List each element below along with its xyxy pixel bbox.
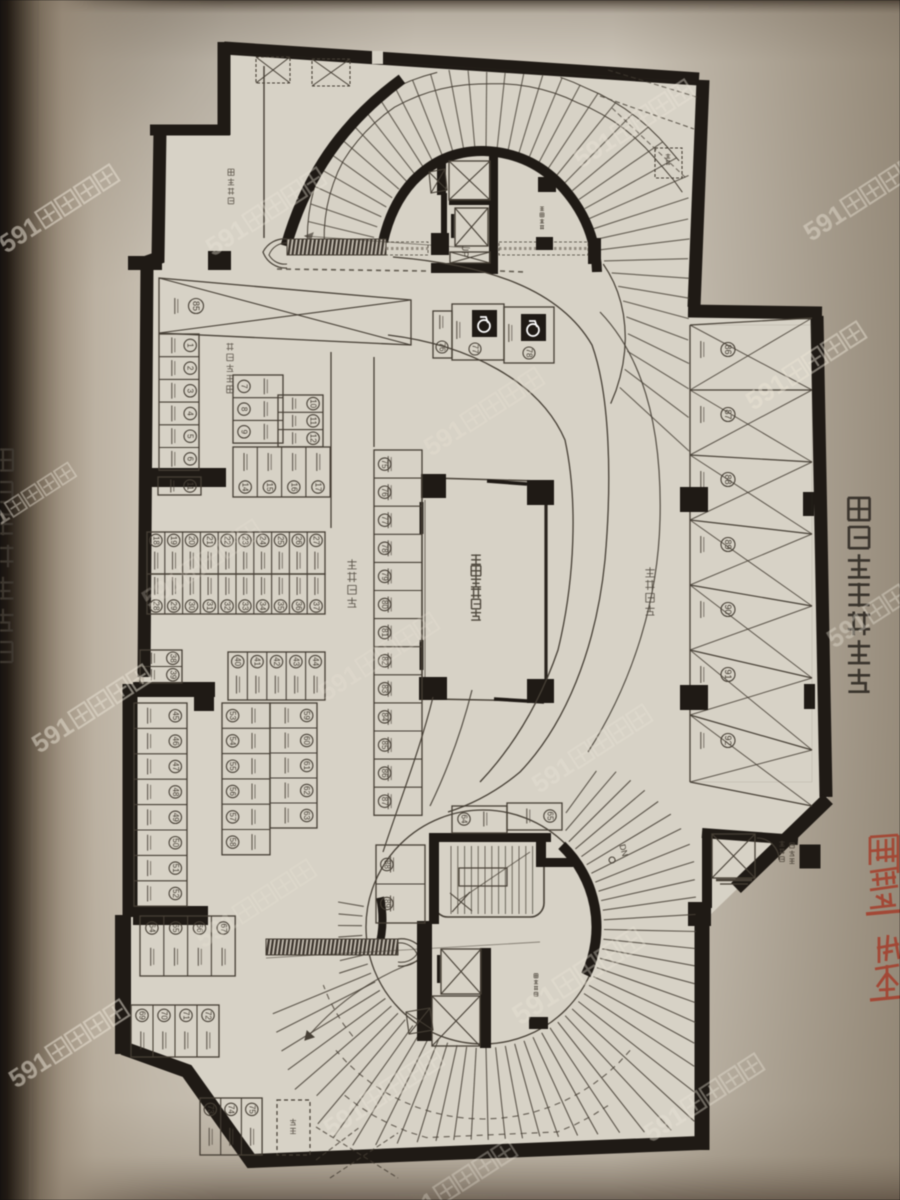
svg-text:5: 5 [186, 434, 195, 439]
svg-text:38: 38 [168, 654, 177, 663]
svg-text:91: 91 [723, 669, 733, 679]
svg-text:69: 69 [138, 1011, 147, 1020]
svg-text:10: 10 [309, 399, 318, 408]
svg-text:64: 64 [460, 815, 469, 824]
svg-text:87: 87 [723, 409, 733, 419]
svg-text:43: 43 [291, 657, 300, 666]
svg-text:11: 11 [309, 417, 318, 426]
svg-text:33: 33 [240, 602, 249, 611]
svg-text:26: 26 [294, 536, 303, 545]
svg-text:74: 74 [227, 1105, 236, 1114]
svg-text:78: 78 [525, 349, 534, 358]
svg-text:46: 46 [171, 737, 180, 746]
svg-text:47: 47 [171, 762, 180, 771]
svg-text:58: 58 [228, 838, 237, 847]
svg-text:51: 51 [171, 864, 180, 873]
svg-text:89: 89 [723, 539, 733, 549]
svg-text:31: 31 [205, 602, 214, 611]
svg-text:14: 14 [241, 483, 250, 492]
svg-text:71: 71 [182, 1011, 191, 1020]
svg-text:19: 19 [169, 536, 178, 545]
svg-text:16: 16 [289, 483, 298, 492]
svg-text:8: 8 [240, 407, 249, 412]
svg-text:89: 89 [382, 899, 391, 908]
svg-text:17: 17 [314, 483, 323, 492]
svg-text:64: 64 [147, 924, 156, 933]
svg-text:20: 20 [187, 536, 196, 545]
svg-text:18: 18 [151, 536, 160, 545]
svg-text:72: 72 [204, 1011, 213, 1020]
svg-text:60: 60 [302, 736, 311, 745]
svg-text:27: 27 [312, 536, 321, 545]
svg-text:70: 70 [160, 1011, 169, 1020]
svg-text:59: 59 [302, 711, 311, 720]
svg-text:32: 32 [223, 602, 232, 611]
svg-text:41: 41 [253, 657, 262, 666]
svg-text:55: 55 [228, 762, 237, 771]
svg-text:62: 62 [302, 786, 311, 795]
svg-text:85: 85 [191, 301, 201, 311]
svg-text:29: 29 [169, 602, 178, 611]
svg-text:45: 45 [171, 711, 180, 720]
svg-text:65: 65 [171, 924, 180, 933]
svg-text:12: 12 [309, 434, 318, 443]
svg-text:56: 56 [228, 787, 237, 796]
svg-text:6: 6 [186, 457, 195, 462]
svg-text:34: 34 [258, 602, 267, 611]
svg-text:76: 76 [438, 343, 447, 352]
svg-text:54: 54 [228, 736, 237, 745]
svg-text:25: 25 [276, 536, 285, 545]
svg-text:4: 4 [186, 411, 195, 416]
svg-text:3: 3 [186, 389, 195, 394]
svg-text:2: 2 [186, 366, 195, 371]
svg-text:61: 61 [302, 761, 311, 770]
svg-text:49: 49 [171, 813, 180, 822]
svg-text:53: 53 [228, 711, 237, 720]
svg-text:37: 37 [312, 602, 321, 611]
svg-text:88: 88 [723, 474, 733, 484]
svg-text:40: 40 [233, 657, 242, 666]
svg-text:15: 15 [265, 483, 274, 492]
svg-text:50: 50 [171, 838, 180, 847]
svg-text:65: 65 [546, 812, 555, 821]
svg-text:77: 77 [471, 345, 480, 354]
svg-text:11: 11 [186, 482, 195, 491]
svg-text:88: 88 [382, 860, 391, 869]
svg-text:73: 73 [206, 1105, 215, 1114]
svg-text:92: 92 [723, 735, 733, 745]
svg-text:36: 36 [294, 602, 303, 611]
svg-text:9: 9 [240, 430, 249, 435]
svg-text:57: 57 [228, 812, 237, 821]
svg-text:30: 30 [187, 602, 196, 611]
svg-text:86: 86 [723, 344, 733, 354]
svg-text:35: 35 [276, 602, 285, 611]
svg-text:42: 42 [272, 657, 281, 666]
svg-text:1: 1 [186, 343, 195, 348]
svg-text:52: 52 [171, 889, 180, 898]
svg-text:7: 7 [240, 384, 249, 389]
svg-text:63: 63 [302, 811, 311, 820]
svg-text:75: 75 [247, 1105, 256, 1114]
svg-text:44: 44 [311, 657, 320, 666]
svg-text:39: 39 [168, 670, 177, 679]
svg-text:90: 90 [723, 604, 733, 614]
svg-text:48: 48 [171, 787, 180, 796]
